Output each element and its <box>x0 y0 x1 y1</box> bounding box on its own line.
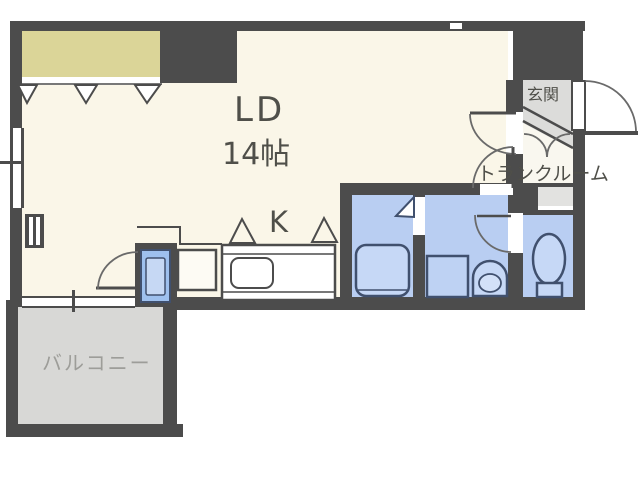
bath-left-wall <box>340 183 352 297</box>
trunk-room-label: トランクルーム <box>477 165 609 184</box>
toilet-door-opening <box>508 213 523 253</box>
washer-wall-block <box>135 243 177 307</box>
bath-door-opening <box>413 197 425 235</box>
left-window <box>10 128 24 208</box>
living-dining-label: LD <box>234 93 285 127</box>
entrance-label: 玄関 <box>527 87 559 103</box>
kitchen-floor <box>22 185 340 297</box>
right-wall <box>573 128 585 310</box>
balcony-bottom-wall <box>6 424 183 437</box>
entrance-door-leaf <box>572 81 585 130</box>
floor-plan: LD 14帖 K 玄関 トランクルーム バルコニー <box>0 0 640 480</box>
top-right-wall-block <box>513 21 583 80</box>
living-dining-size-label: 14帖 <box>222 140 290 170</box>
washroom-floor <box>425 195 508 297</box>
trunk-room-door-gap <box>538 206 573 210</box>
washroom-door-opening <box>480 184 513 195</box>
balcony-left-wall <box>6 300 18 437</box>
top-left-wall-block <box>160 21 237 83</box>
entrance-door-arc <box>585 81 636 132</box>
bathroom-floor <box>352 195 413 297</box>
kitchen-label: K <box>269 208 288 237</box>
closet-door-track <box>22 77 162 85</box>
top-window <box>450 23 462 29</box>
left-window-tick <box>0 161 22 164</box>
ld-door-opening <box>506 112 523 154</box>
balcony-door-tick <box>72 290 75 312</box>
toilet-floor <box>523 215 573 297</box>
balcony-sliding-door <box>22 296 135 308</box>
bottom-wall <box>177 297 585 310</box>
balcony-right-wall <box>163 303 177 437</box>
closet <box>22 31 162 77</box>
trunk-room-floor <box>538 187 573 206</box>
balcony-label: バルコニー <box>42 353 152 373</box>
top-wall <box>10 21 585 31</box>
